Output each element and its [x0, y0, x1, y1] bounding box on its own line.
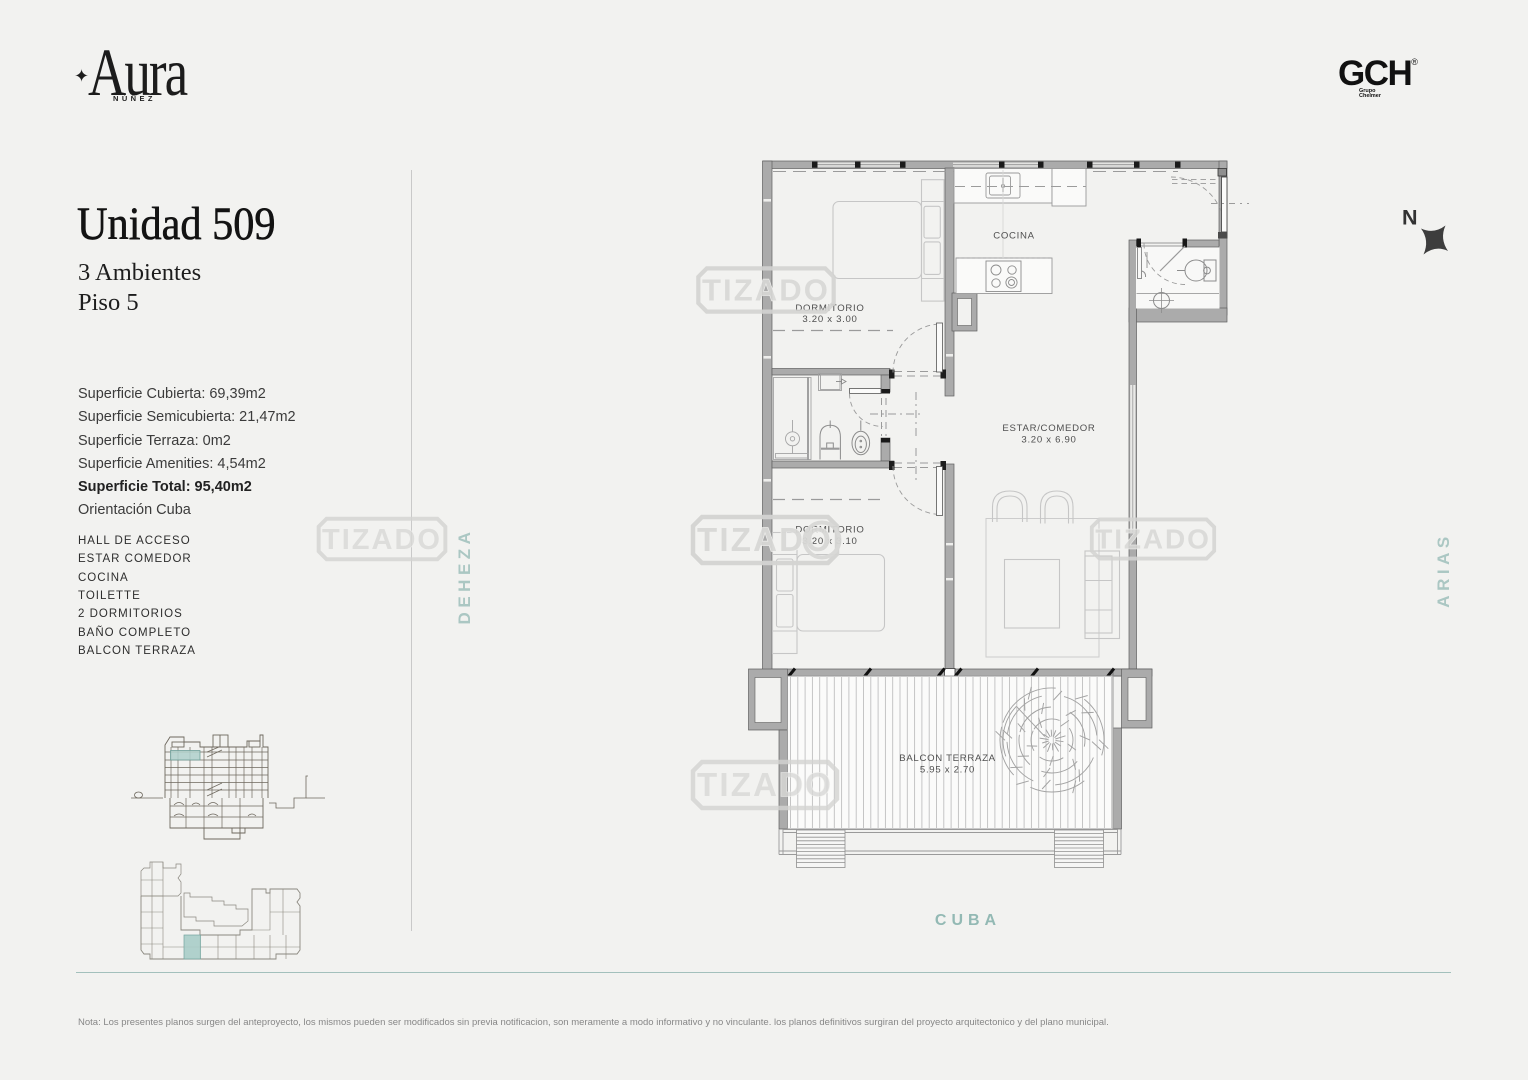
- svg-text:TIZADO: TIZADO: [1095, 523, 1211, 554]
- svg-text:COCINA: COCINA: [993, 231, 1035, 242]
- svg-text:BALCON TERRAZA: BALCON TERRAZA: [899, 753, 996, 764]
- svg-text:TIZADO: TIZADO: [322, 524, 442, 556]
- svg-text:5.95 x 2.70: 5.95 x 2.70: [920, 765, 975, 776]
- svg-text:TIZADO: TIZADO: [697, 766, 833, 803]
- svg-text:3.20 x 6.90: 3.20 x 6.90: [1021, 435, 1076, 446]
- svg-text:3.20 x 3.00: 3.20 x 3.00: [802, 314, 857, 325]
- svg-text:TIZADO: TIZADO: [702, 272, 830, 307]
- svg-text:ESTAR/COMEDOR: ESTAR/COMEDOR: [1002, 423, 1095, 434]
